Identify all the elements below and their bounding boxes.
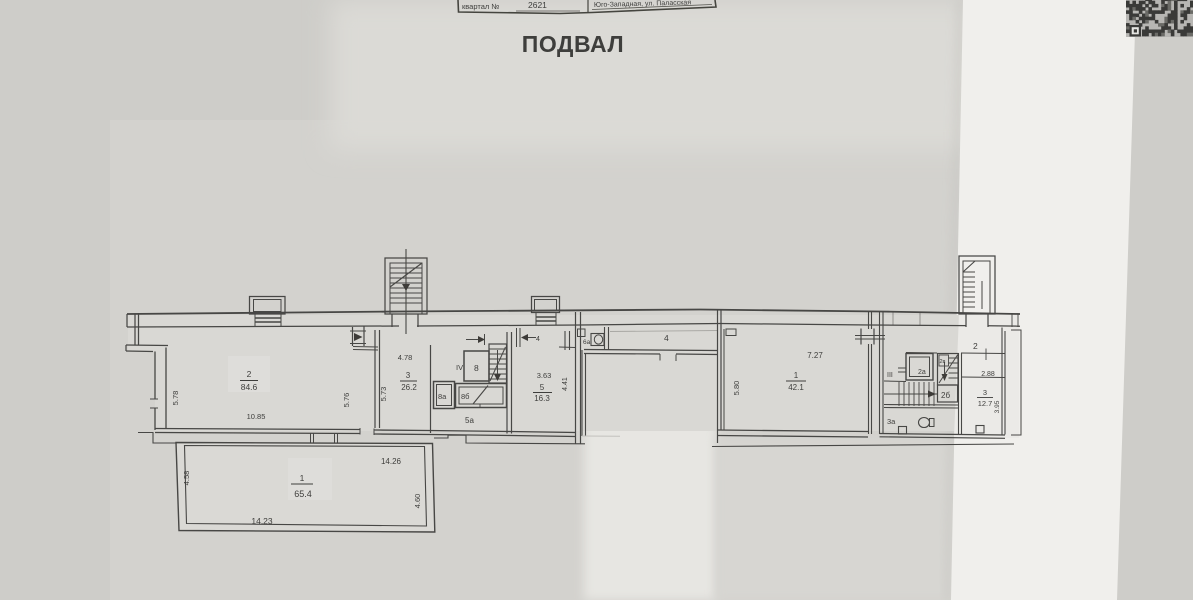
svg-text:2621: 2621 [528, 0, 547, 10]
svg-text:4: 4 [664, 333, 669, 343]
svg-text:2.88: 2.88 [981, 371, 995, 378]
svg-text:12.7: 12.7 [978, 399, 993, 408]
svg-text:IV: IV [456, 363, 463, 372]
svg-text:7.27: 7.27 [807, 351, 823, 360]
svg-text:42.1: 42.1 [788, 383, 804, 392]
svg-text:14.23: 14.23 [251, 516, 273, 526]
svg-text:65.4: 65.4 [294, 489, 312, 499]
svg-text:4.41: 4.41 [562, 377, 569, 391]
svg-text:5а: 5а [465, 416, 474, 425]
svg-text:4.78: 4.78 [398, 353, 413, 362]
svg-text:3.63: 3.63 [537, 371, 552, 380]
svg-text:3: 3 [406, 371, 411, 380]
svg-text:5.73: 5.73 [379, 387, 388, 402]
svg-text:5.76: 5.76 [342, 393, 351, 408]
svg-text:1: 1 [300, 473, 305, 483]
svg-text:3.95: 3.95 [994, 400, 1001, 413]
svg-text:ПОДВАЛ: ПОДВАЛ [522, 31, 625, 57]
svg-text:10.85: 10.85 [247, 412, 266, 421]
svg-text:5.80: 5.80 [732, 381, 741, 396]
svg-text:2: 2 [973, 341, 978, 351]
svg-text:2в: 2в [940, 359, 946, 365]
svg-text:1: 1 [794, 371, 799, 380]
svg-text:4.60: 4.60 [413, 494, 422, 509]
svg-text:8б: 8б [461, 392, 469, 401]
svg-text:16.3: 16.3 [534, 394, 550, 403]
svg-text:8: 8 [474, 363, 479, 373]
svg-text:2а: 2а [918, 369, 926, 376]
svg-text:3а: 3а [887, 417, 896, 426]
svg-text:84.6: 84.6 [241, 382, 258, 392]
svg-text:4: 4 [536, 336, 540, 343]
svg-text:5: 5 [540, 383, 545, 392]
svg-text:4.58: 4.58 [182, 471, 191, 486]
svg-text:6а: 6а [583, 339, 591, 346]
svg-text:8а: 8а [438, 392, 447, 401]
svg-text:14.26: 14.26 [381, 457, 402, 466]
svg-text:2б: 2б [941, 391, 950, 400]
svg-text:III: III [887, 372, 893, 379]
svg-text:5.78: 5.78 [171, 391, 180, 406]
svg-text:квартал №: квартал № [462, 2, 499, 11]
svg-text:2: 2 [247, 369, 252, 379]
svg-text:3: 3 [983, 388, 987, 397]
svg-text:26.2: 26.2 [401, 383, 417, 392]
